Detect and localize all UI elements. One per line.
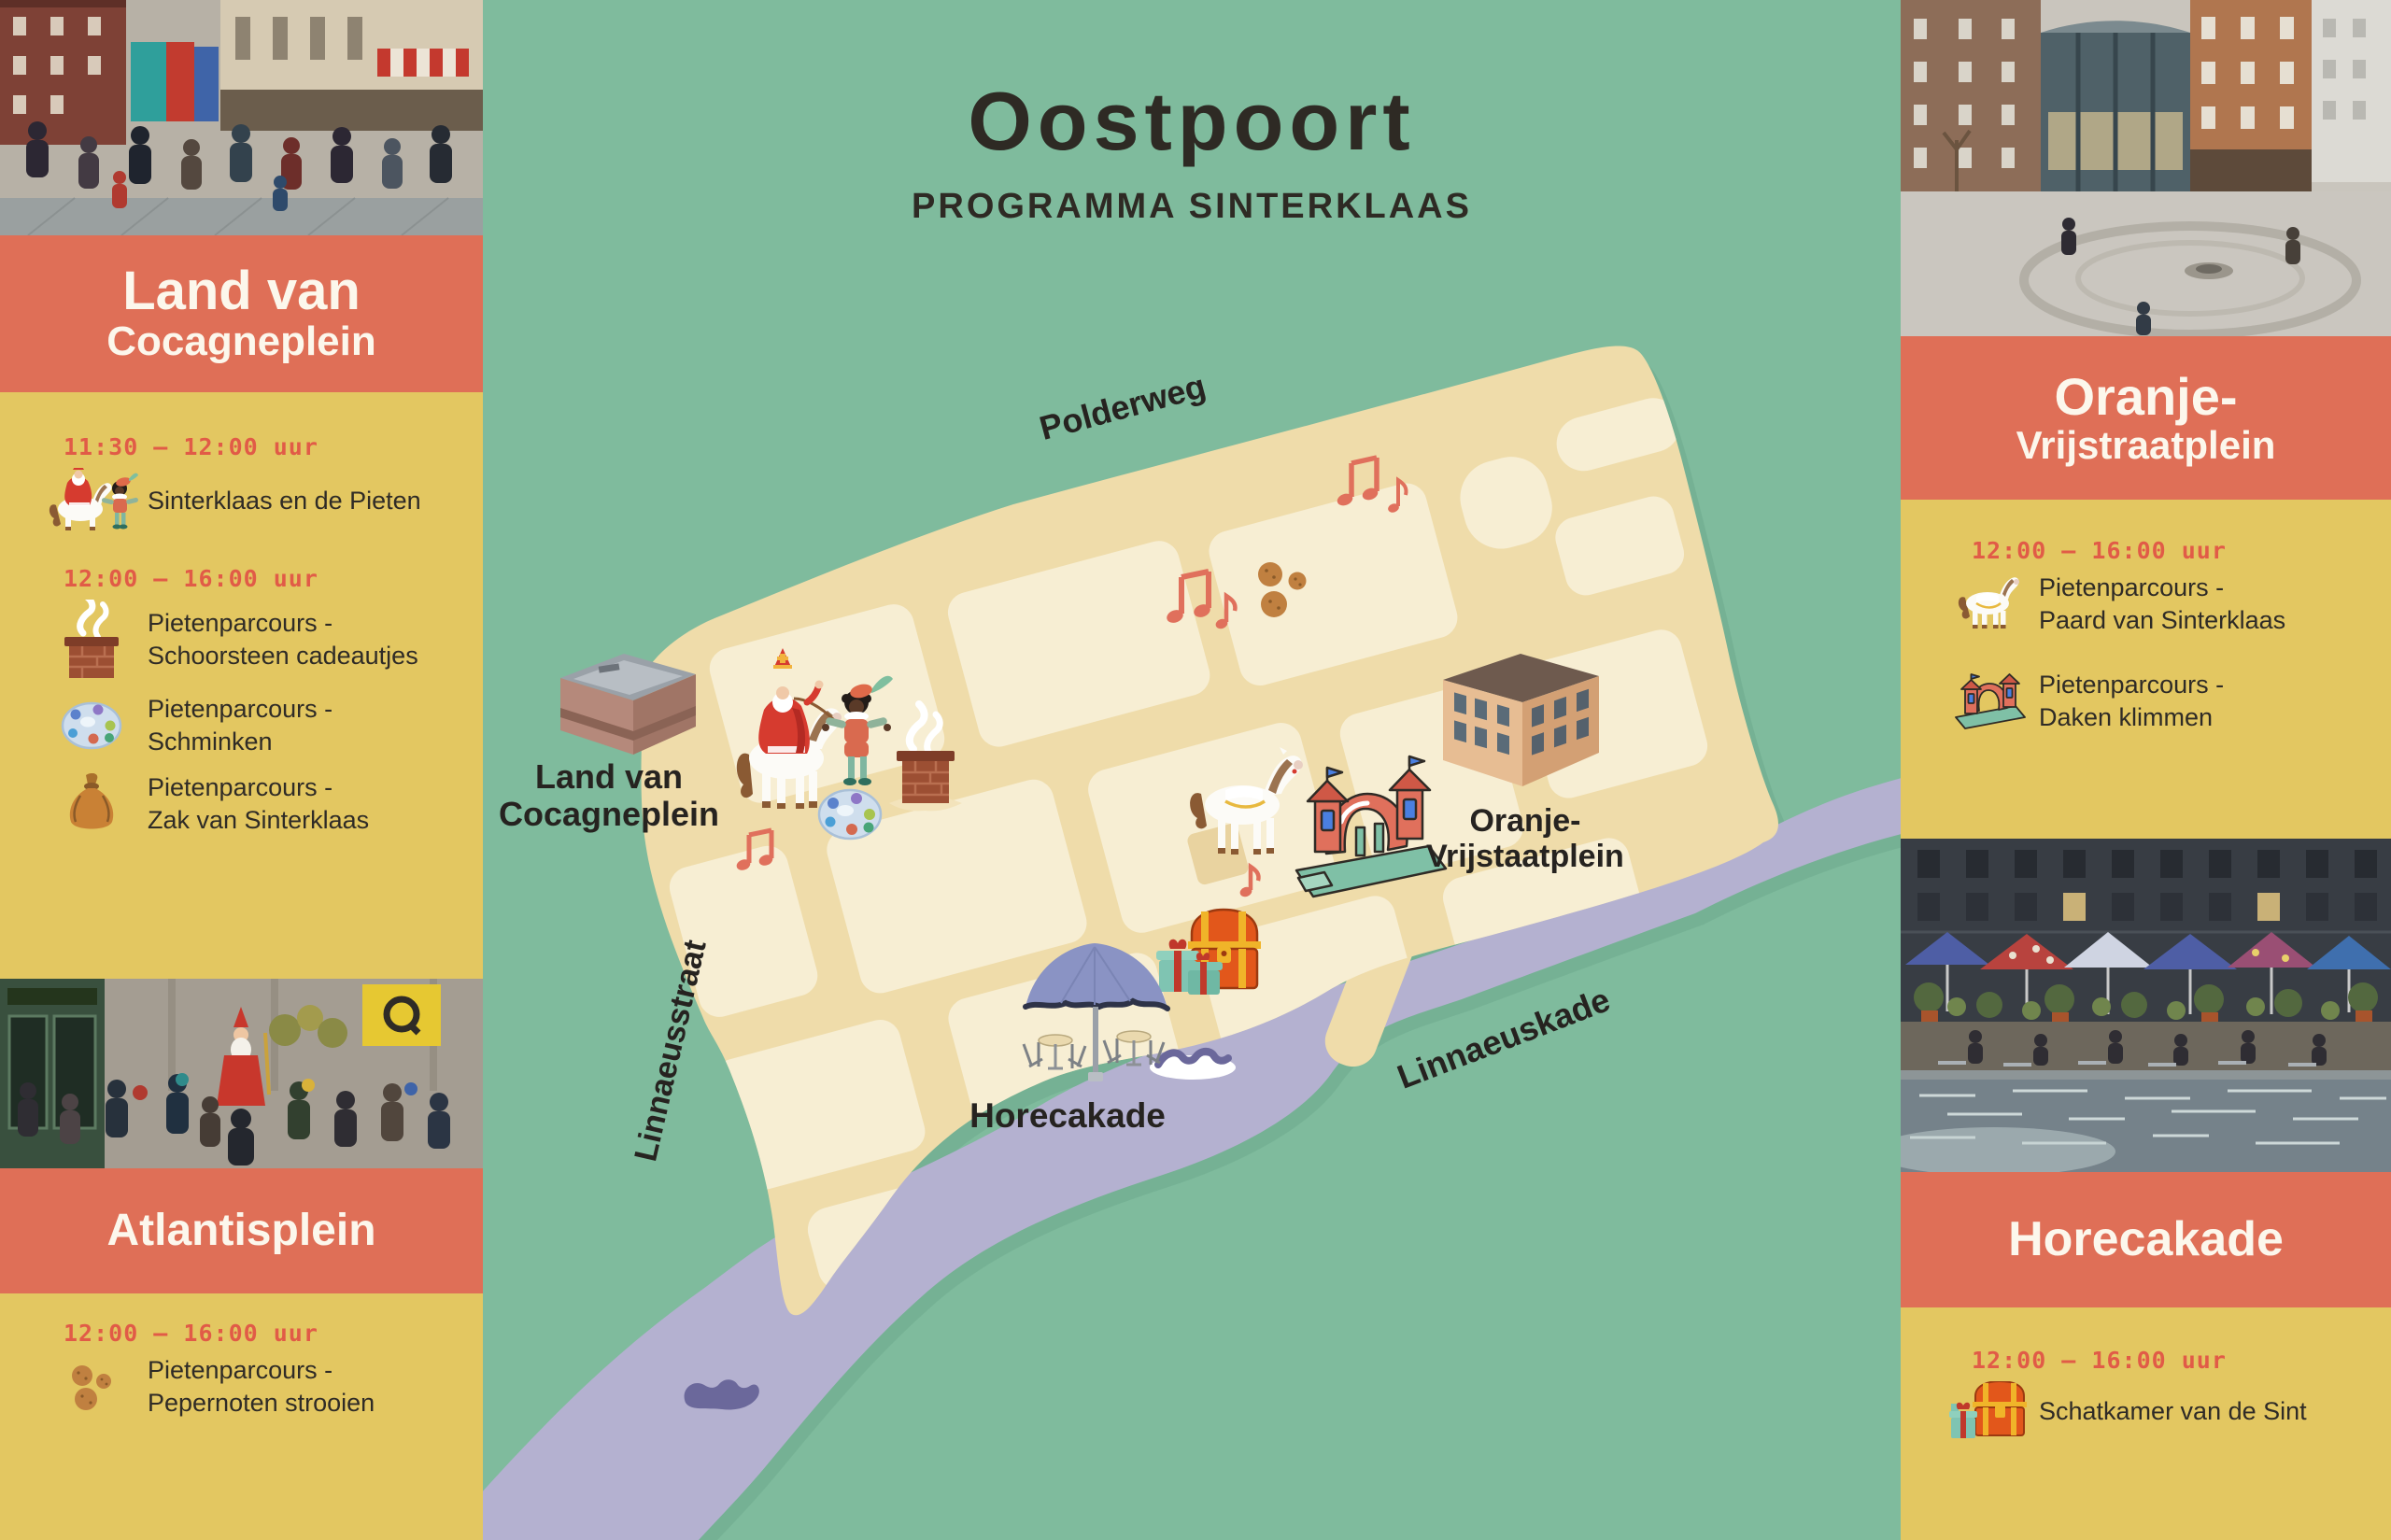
header-line1: Atlantisplein <box>106 1208 375 1254</box>
schedule-item: Sinterklaas en de Pieten <box>45 468 464 533</box>
time-slot: 12:00 – 16:00 uur <box>64 565 464 592</box>
paint-palette-illustration <box>819 790 881 839</box>
bouncy-castle-icon <box>1949 672 2030 730</box>
time-slot: 12:00 – 16:00 uur <box>1972 537 2376 564</box>
item-text: Pietenparcours - <box>148 771 369 804</box>
item-text: Zak van Sinterklaas <box>148 804 369 837</box>
photo-atlantisplein-crowd <box>0 979 483 1168</box>
left-panel: Land van Cocagneplein 11:30 – 12:00 uur <box>0 0 483 1540</box>
page-title: Oostpoort <box>483 78 1901 164</box>
page-subtitle: PROGRAMMA SINTERKLAAS <box>483 187 1901 227</box>
poster-root: Polderweg Linnaeusstraat Linnaeuskade Ho… <box>0 0 2391 1540</box>
treasure-chest-icon <box>1949 1381 2030 1441</box>
area-label-cocagne-line2: Cocagneplein <box>499 795 719 833</box>
schedule-item: Pietenparcours - Schoorsteen cadeautjes <box>45 600 464 680</box>
area-label-cocagne-line1: Land van <box>535 757 683 796</box>
left-header-atlantisplein: Atlantisplein <box>0 1168 483 1293</box>
header-line1: Horecakade <box>2008 1214 2284 1265</box>
photo-horecakade-terrace <box>1901 839 2391 1172</box>
schedule-item: Pietenparcours - Pepernoten strooien <box>45 1354 464 1420</box>
chimney-icon <box>45 600 138 680</box>
area-label-horecakade: Horecakade <box>969 1096 1166 1135</box>
header-line1: Oranje- <box>2054 370 2237 425</box>
schedule-item: Schatkamer van de Sint <box>1949 1381 2376 1441</box>
title-block: Oostpoort PROGRAMMA SINTERKLAAS <box>483 78 1901 227</box>
schedule-item: Pietenparcours - Schminken <box>45 693 464 758</box>
pepernoten-icon <box>45 1363 138 1411</box>
header-line2: Cocagneplein <box>106 320 376 363</box>
time-slot: 12:00 – 16:00 uur <box>64 1320 464 1347</box>
header-line2: Vrijstraatplein <box>2016 425 2276 466</box>
left-schedule-cocagneplein: 11:30 – 12:00 uur <box>0 392 483 979</box>
left-schedule-atlantisplein: 12:00 – 16:00 uur Pietenparcours - Peper… <box>0 1293 483 1540</box>
schedule-item: Pietenparcours - Paard van Sinterklaas <box>1949 572 2376 637</box>
right-header-oranje: Oranje- Vrijstraatplein <box>1901 336 2391 500</box>
schedule-item: Pietenparcours - Zak van Sinterklaas <box>45 771 464 837</box>
item-text: Schatkamer van de Sint <box>2039 1395 2307 1428</box>
photo-oranje-vrijstraatplein <box>1901 0 2391 336</box>
paint-palette-icon <box>45 701 138 750</box>
item-text: Schoorsteen cadeautjes <box>148 640 418 672</box>
horse-icon <box>1949 575 2030 633</box>
time-slot: 11:30 – 12:00 uur <box>64 433 464 460</box>
area-label-oranje-line1: Oranje- <box>1469 803 1580 839</box>
right-schedule-horecakade: 12:00 – 16:00 uur <box>1901 1307 2391 1540</box>
right-header-horecakade: Horecakade <box>1901 1172 2391 1307</box>
item-text: Pietenparcours - <box>148 1354 375 1387</box>
item-text: Paard van Sinterklaas <box>2039 604 2285 637</box>
right-schedule-oranje: 12:00 – 16:00 uur <box>1901 500 2391 839</box>
item-text: Sinterklaas en de Pieten <box>148 485 421 517</box>
item-text: Pietenparcours - Schminken <box>148 693 464 758</box>
gift-sack-icon <box>45 773 138 835</box>
schedule-item: Pietenparcours - Daken klimmen <box>1949 669 2376 734</box>
sinterklaas-and-piet-icon <box>45 468 138 533</box>
area-label-oranje-line2: Vrijstaatplein <box>1426 839 1624 874</box>
left-header-cocagneplein: Land van Cocagneplein <box>0 235 483 392</box>
item-text: Pietenparcours - <box>2039 572 2285 604</box>
photo-cocagneplein-market <box>0 0 483 235</box>
item-text: Pepernoten strooien <box>148 1387 375 1420</box>
right-panel: Oranje- Vrijstraatplein 12:00 – 16:00 uu… <box>1901 0 2391 1540</box>
item-text: Daken klimmen <box>2039 701 2224 734</box>
item-text: Pietenparcours - <box>148 607 418 640</box>
header-line1: Land van <box>122 263 361 320</box>
item-text: Pietenparcours - <box>2039 669 2224 701</box>
time-slot: 12:00 – 16:00 uur <box>1972 1347 2376 1374</box>
